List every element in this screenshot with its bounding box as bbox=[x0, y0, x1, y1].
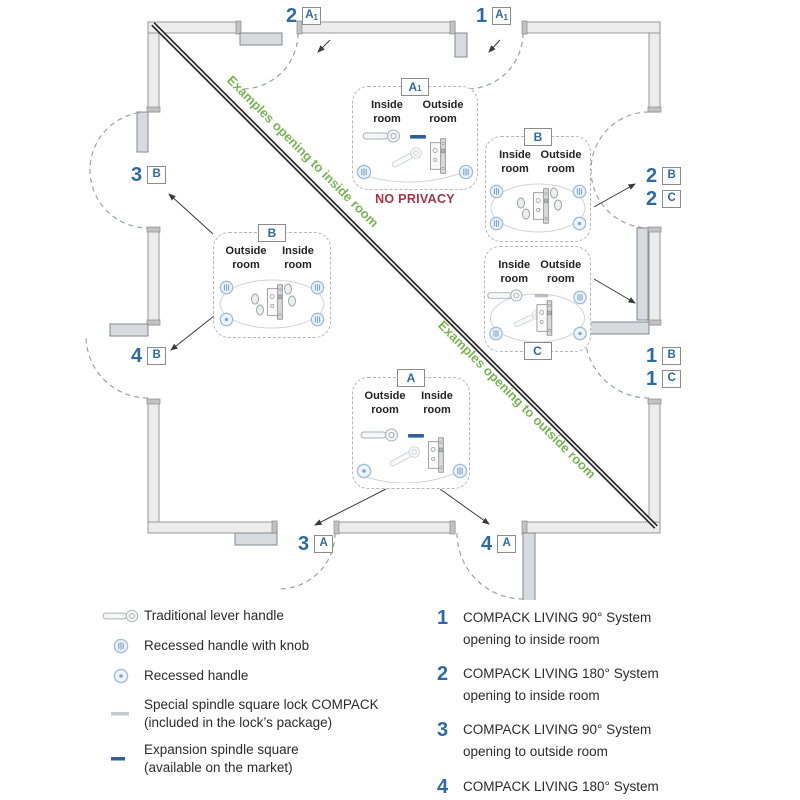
lever-handle-icon bbox=[361, 429, 398, 441]
lock-body-icon bbox=[267, 285, 282, 319]
recessed-handle-knob-icon bbox=[311, 281, 323, 293]
detail-box-bottom-a: A Outside room Inside room bbox=[352, 377, 470, 489]
no-privacy-note: NO PRIVACY bbox=[352, 192, 478, 206]
door-label-2-b: 2 B bbox=[646, 166, 681, 186]
hardware-icons bbox=[487, 178, 589, 236]
room-label-right: Outside room bbox=[538, 149, 584, 177]
recessed-handle-knob-icon bbox=[311, 313, 323, 325]
room-label-left: Outside room bbox=[359, 390, 411, 418]
door-label-2-c: 2 C bbox=[646, 189, 681, 209]
room-label-left: Inside room bbox=[492, 149, 538, 177]
recessed-handle-knob-icon bbox=[490, 185, 502, 197]
lock-body-icon bbox=[430, 139, 445, 173]
spindle-knob-icon bbox=[518, 198, 525, 208]
door-leaf-1a1 bbox=[455, 33, 467, 57]
door-label-4-b: 4 B bbox=[131, 346, 166, 366]
recessed-handle-knob-icon bbox=[453, 464, 466, 477]
recessed-handle-icon bbox=[573, 217, 585, 229]
recessed-handle-knob-icon bbox=[573, 291, 585, 303]
legend-item: Recessed handle with knob bbox=[98, 636, 428, 656]
legend-item: Expansion spindle square(available on th… bbox=[98, 741, 428, 776]
room-label-right: Inside room bbox=[411, 390, 463, 418]
lever-handle-icon bbox=[98, 608, 144, 624]
system-entry: 1 COMPACK LIVING 90° Systemopening to in… bbox=[437, 607, 767, 650]
lever-handle-icon bbox=[390, 146, 423, 170]
hardware-icons bbox=[486, 288, 589, 346]
lever-handle-icon bbox=[487, 290, 521, 301]
spindle-knob-icon bbox=[252, 294, 259, 304]
spindle-knob-icon bbox=[555, 200, 562, 210]
room-label-right: Outside room bbox=[538, 259, 585, 287]
system-entry: 3 COMPACK LIVING 90° Systemopening to ou… bbox=[437, 719, 767, 762]
system-entry: 4 COMPACK LIVING 180° Systemopening to o… bbox=[437, 776, 767, 800]
recessed-handle-knob-icon bbox=[489, 327, 501, 339]
door-label-3-b: 3 B bbox=[131, 165, 166, 185]
room-label-right: Inside room bbox=[272, 245, 324, 273]
room-label-left: Inside room bbox=[359, 99, 415, 127]
recessed-handle-knob-icon bbox=[459, 165, 472, 178]
hardware-icons bbox=[354, 126, 476, 184]
room-label-right: Outside room bbox=[415, 99, 471, 127]
recessed-handle-knob-icon bbox=[573, 185, 585, 197]
spindle-knob-icon bbox=[289, 296, 296, 306]
spindle-knob-icon bbox=[523, 209, 530, 219]
recessed-handle-icon bbox=[98, 668, 144, 684]
spindle-knob-icon bbox=[551, 188, 558, 198]
door-leaf-4a bbox=[523, 533, 535, 600]
box-tab-b: B bbox=[524, 128, 552, 146]
expansion-spindle-icon bbox=[408, 434, 424, 438]
hardware-icons bbox=[354, 425, 468, 483]
recessed-handle-knob-icon bbox=[490, 217, 502, 229]
detail-box-right-c: C Inside room Outside room bbox=[484, 246, 591, 352]
detail-box-a1: A1 Inside room Outside room bbox=[352, 86, 478, 190]
system-list: 1 COMPACK LIVING 90° Systemopening to in… bbox=[437, 607, 767, 800]
door-label-4-a: 4 A bbox=[481, 534, 516, 554]
room-label-left: Outside room bbox=[220, 245, 272, 273]
special-spindle-icon bbox=[534, 294, 548, 297]
detail-box-right-b: B Inside room Outside room bbox=[485, 136, 591, 242]
lever-handle-icon bbox=[388, 445, 421, 469]
door-leaf-1bc bbox=[589, 322, 649, 334]
recessed-handle-knob-icon bbox=[357, 165, 370, 178]
recessed-handle-icon bbox=[220, 313, 232, 325]
spindle-square-blue-icon bbox=[98, 755, 144, 763]
legend-item: Recessed handle bbox=[98, 666, 428, 686]
recessed-handle-knob-icon bbox=[98, 638, 144, 654]
lock-body-icon bbox=[536, 301, 551, 335]
recessed-handle-icon bbox=[357, 464, 370, 477]
door-label-3-a: 3 A bbox=[298, 534, 333, 554]
lever-handle-icon bbox=[363, 130, 400, 142]
door-leaf-2bc bbox=[637, 228, 648, 320]
door-leaf-3b bbox=[137, 112, 148, 152]
expansion-spindle-icon bbox=[410, 135, 426, 139]
door-leaf-3a bbox=[235, 533, 277, 545]
door-label-2-a1: 2 A1 bbox=[286, 6, 321, 26]
box-tab-a: A bbox=[397, 369, 425, 387]
legend: Traditional lever handle Recessed handle… bbox=[98, 606, 428, 786]
lock-body-icon bbox=[428, 438, 443, 472]
door-label-1-a1: 1 A1 bbox=[476, 6, 511, 26]
door-label-1-c: 1 C bbox=[646, 369, 681, 389]
door-label-1-b: 1 B bbox=[646, 346, 681, 366]
system-entry: 2 COMPACK LIVING 180° Systemopening to i… bbox=[437, 663, 767, 706]
legend-item: Special spindle square lock COMPACK(incl… bbox=[98, 696, 428, 731]
spindle-square-gray-icon bbox=[98, 710, 144, 718]
recessed-handle-icon bbox=[573, 327, 585, 339]
spindle-knob-icon bbox=[285, 284, 292, 294]
lock-body-icon bbox=[533, 189, 548, 223]
detail-box-left-b: B Outside room Inside room bbox=[213, 232, 331, 338]
door-leaf-4b bbox=[110, 324, 148, 336]
legend-item: Traditional lever handle bbox=[98, 606, 428, 626]
box-tab-a1: A1 bbox=[401, 78, 429, 96]
spindle-knob-icon bbox=[257, 305, 264, 315]
box-tab-b: B bbox=[258, 224, 286, 242]
hardware-icons bbox=[215, 274, 329, 332]
diagram-canvas: Examples opening to inside room Examples… bbox=[0, 0, 800, 800]
box-tab-c: C bbox=[524, 342, 552, 360]
recessed-handle-knob-icon bbox=[220, 281, 232, 293]
door-leaf-2a1 bbox=[240, 33, 282, 45]
room-label-left: Inside room bbox=[491, 259, 538, 287]
